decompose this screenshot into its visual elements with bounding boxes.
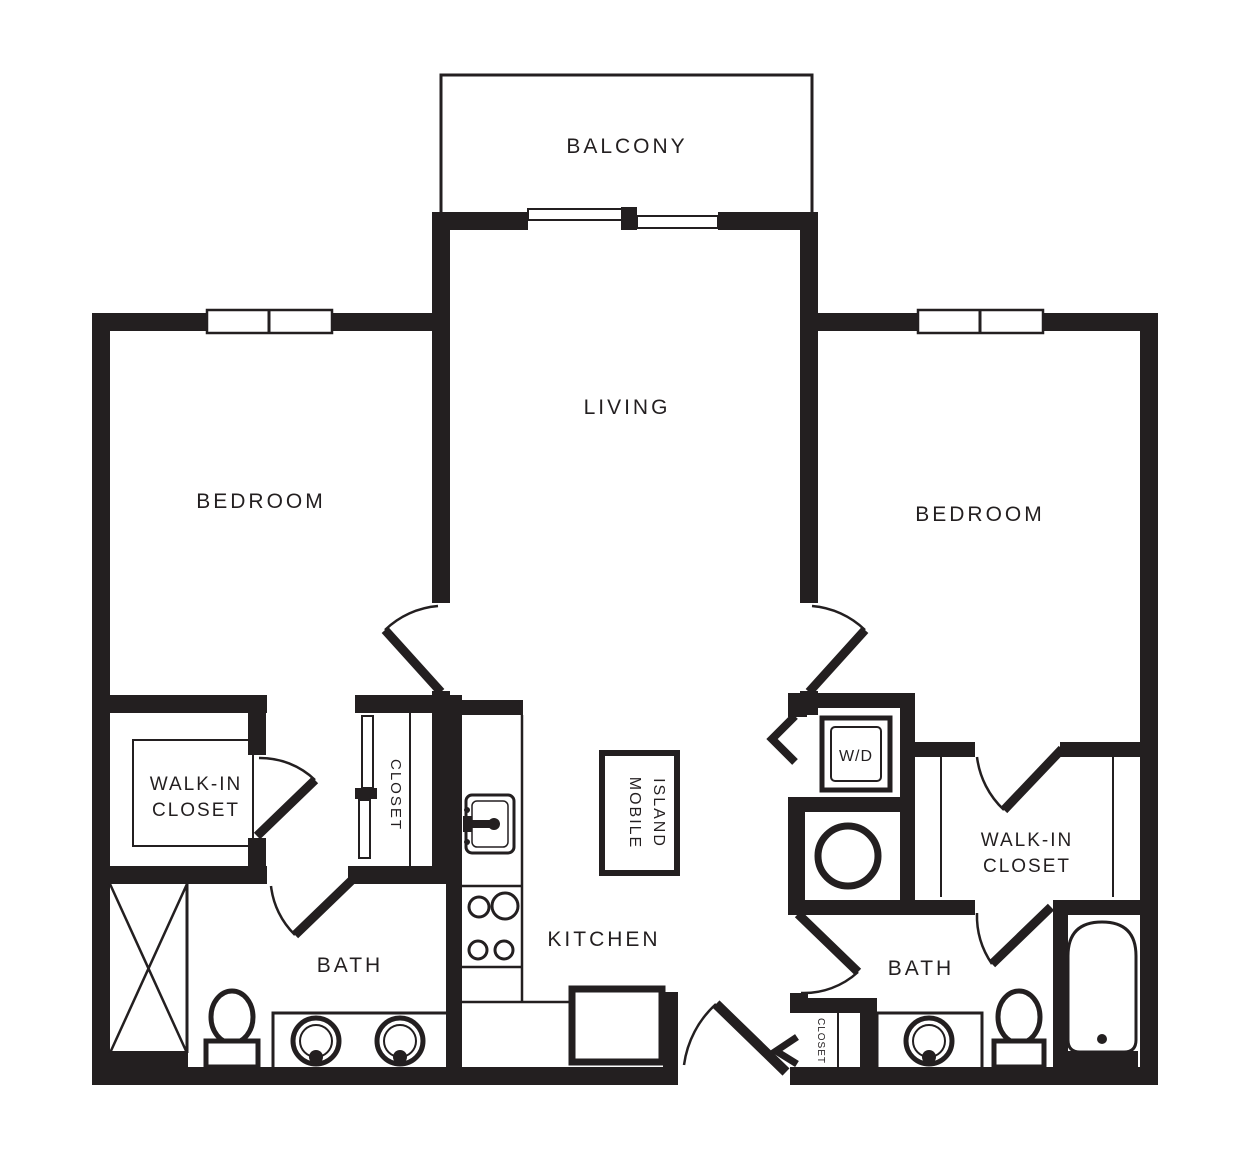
sliding-door-icon (528, 207, 718, 230)
window-icon-left (207, 310, 332, 333)
mobile-island: MOBILE ISLAND (602, 753, 677, 873)
kitchen-sink-icon (463, 795, 514, 853)
bedroom-right-label: BEDROOM (915, 503, 1045, 526)
sink-icon (293, 1018, 339, 1064)
bedroom-left-label: BEDROOM (196, 490, 326, 513)
entry-closet: CLOSET (776, 998, 877, 1067)
bath-left-door (271, 880, 352, 935)
door-leaf (992, 907, 1051, 964)
walk-in-closet-left: WALK-IN CLOSET (92, 713, 315, 884)
toilet-icon (206, 991, 258, 1067)
window-icon-right (918, 310, 1043, 333)
bathtub-icon (1060, 922, 1138, 1067)
laundry: W/D (772, 693, 975, 915)
door-arc (801, 972, 858, 993)
floor-plan: BALCONY LIVING BEDROOM BEDROOM KITCHEN (0, 0, 1244, 1169)
wic-left-label-1: WALK-IN (150, 774, 242, 795)
entry-closet-label: CLOSET (815, 1018, 826, 1064)
bath-right (790, 900, 1138, 1067)
mobile-island-label-2: ISLAND (650, 778, 667, 848)
mobile-island-label-1: MOBILE (626, 777, 643, 849)
door-leaf (798, 914, 858, 972)
door-leaf (257, 780, 315, 836)
balcony-label: BALCONY (566, 135, 687, 158)
bath-right-label: BATH (888, 957, 954, 980)
refrigerator-icon (572, 989, 662, 1062)
bath-left-label: BATH (317, 954, 383, 977)
stove-icon (469, 893, 518, 959)
wic-left-label-2: CLOSET (152, 800, 240, 821)
kitchen-label: KITCHEN (547, 928, 660, 951)
door-arc (977, 757, 1004, 810)
washer-dryer-label: W/D (839, 748, 873, 765)
wic-right-label-1: WALK-IN (981, 830, 1073, 851)
bifold-door-icon (359, 800, 370, 858)
bifold-door-icon (362, 716, 373, 788)
entry: CLOSET (684, 998, 877, 1072)
door-leaf (716, 1004, 786, 1072)
washer-icon (818, 826, 878, 886)
front-door (684, 1004, 786, 1072)
washer-dryer-unit: W/D (822, 718, 890, 790)
living-label: LIVING (584, 396, 671, 419)
hall-closet: CLOSET (355, 713, 410, 866)
shower-icon (110, 884, 188, 1067)
toilet-icon (994, 991, 1044, 1067)
door-leaf (1004, 749, 1062, 810)
bifold-door-icon (772, 716, 795, 762)
door-arc (977, 913, 992, 964)
door-arc (684, 1004, 716, 1065)
vanity-double-sink (273, 1013, 446, 1067)
drain (1097, 1034, 1107, 1044)
kitchen: MOBILE ISLAND (446, 700, 678, 1067)
wic-right-label-2: CLOSET (983, 856, 1071, 877)
hall-closet-label: CLOSET (387, 759, 404, 831)
door-arc (259, 758, 315, 780)
vanity-single-sink (877, 1013, 982, 1067)
sink-icon (377, 1018, 423, 1064)
balcony: BALCONY (441, 75, 812, 212)
